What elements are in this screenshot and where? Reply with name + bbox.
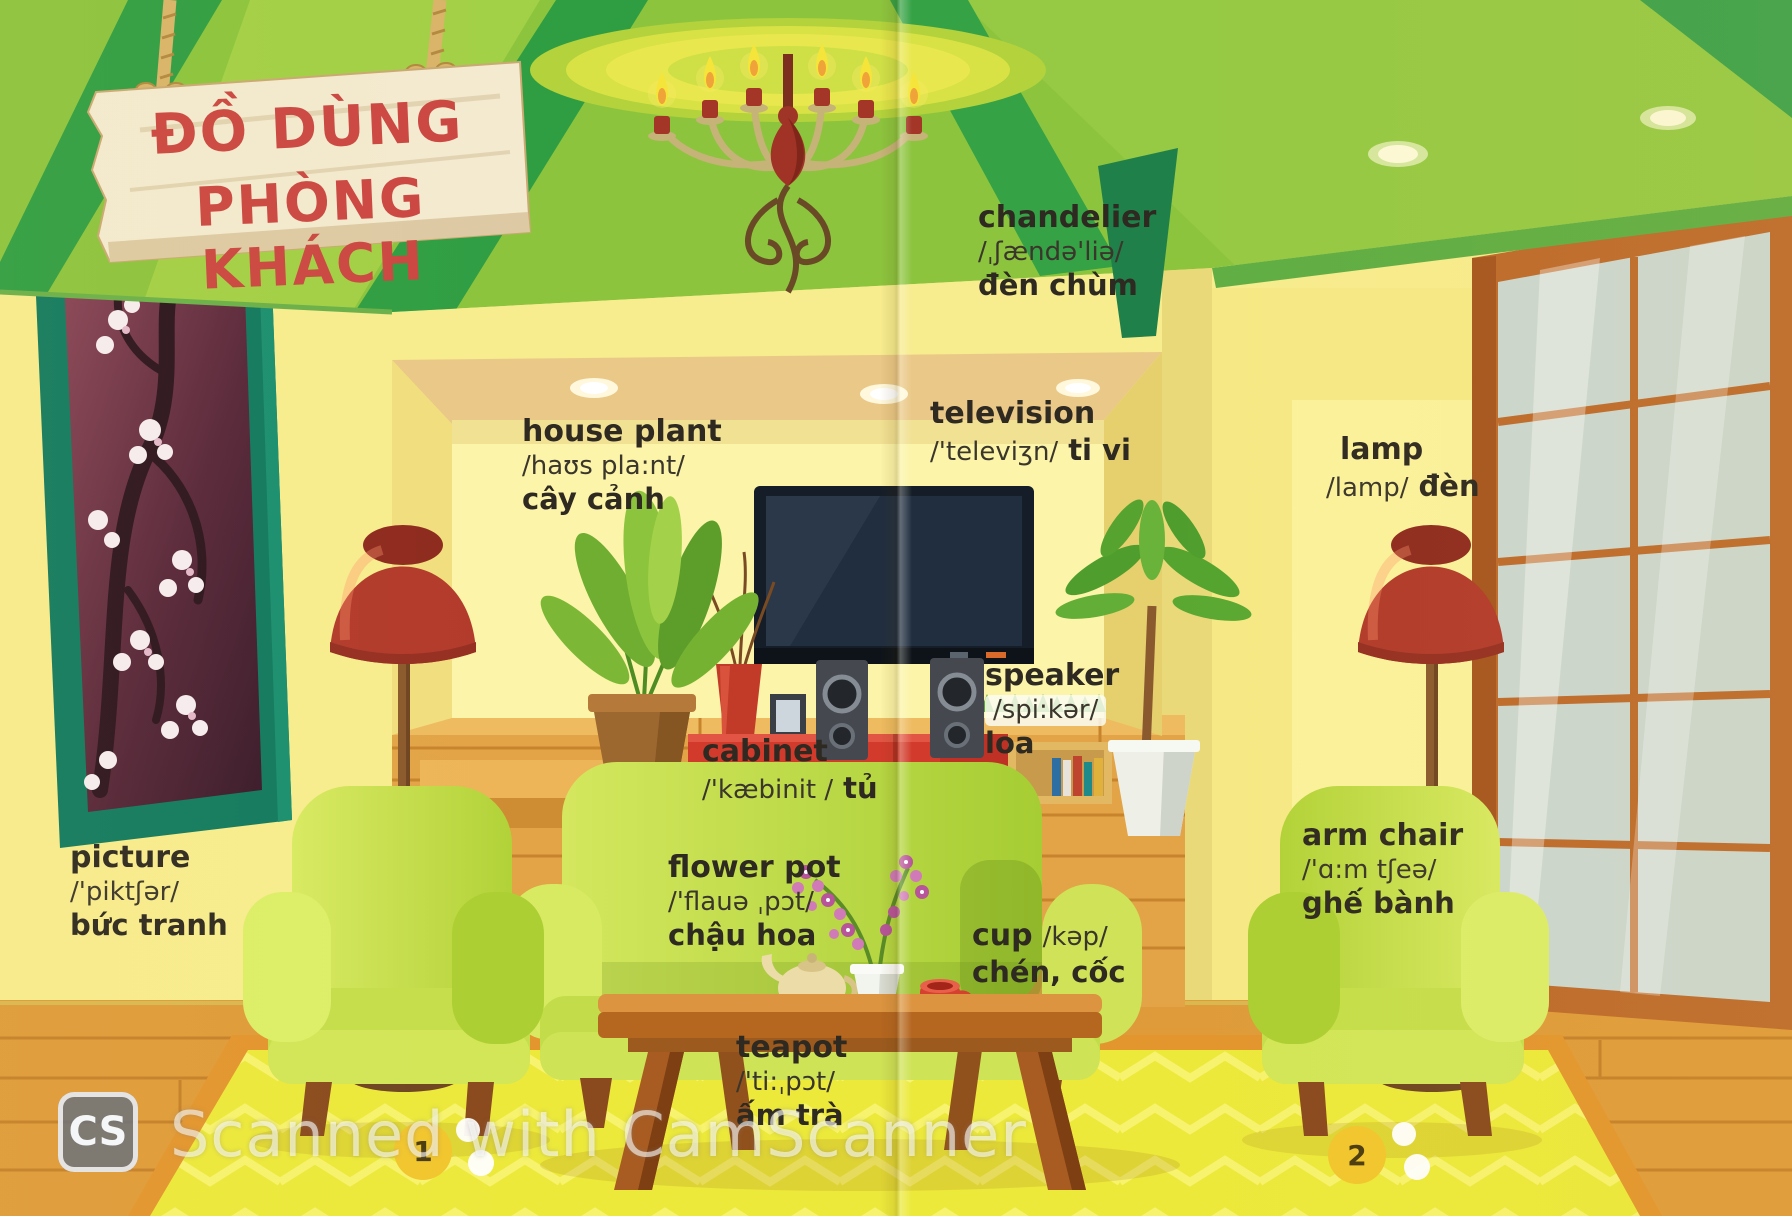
vocab-label-picture: picture /'piktʃər/ bức tranh xyxy=(70,840,228,944)
phonetic: /haʊs pla:nt/ xyxy=(522,451,722,483)
page-dot xyxy=(1404,1154,1430,1180)
vocab-label-television: television /'televiʒn/ti vi xyxy=(930,396,1131,468)
phonetic: /kəp/ xyxy=(1043,922,1108,952)
page-title-sign: ĐỒ DÙNG PHÒNG KHÁCH xyxy=(88,87,532,307)
viet: bức tranh xyxy=(70,908,228,943)
picture-frame-art xyxy=(34,230,292,848)
viet: cây cảnh xyxy=(522,482,722,517)
phonetic: /'flauə ˌpɔt/ xyxy=(668,887,841,919)
word: flower pot xyxy=(668,850,841,887)
word: cup xyxy=(972,918,1033,953)
vocab-label-arm-chair: arm chair /'ɑ:m tʃeə/ ghế bành xyxy=(1302,818,1463,922)
camscanner-watermark: Scanned with CamScanner xyxy=(170,1098,1027,1171)
page-dot xyxy=(1392,1122,1416,1146)
word: cabinet xyxy=(702,734,878,771)
speaker-right-illustration xyxy=(930,658,984,758)
viet: đèn xyxy=(1419,469,1480,503)
phonetic: /'kæbinit / xyxy=(702,775,833,805)
viet: chén, cốc xyxy=(972,955,1126,990)
vocab-label-house-plant: house plant /haʊs pla:nt/ cây cảnh xyxy=(522,414,722,518)
page-number-right: 2 xyxy=(1347,1139,1366,1172)
page-title-line2: PHÒNG KHÁCH xyxy=(91,162,532,307)
word: teapot xyxy=(736,1030,847,1067)
word: chandelier xyxy=(978,200,1156,237)
page-number-badge-right: 2 xyxy=(1328,1126,1386,1184)
vocab-label-flower-pot: flower pot /'flauə ˌpɔt/ chậu hoa xyxy=(668,850,841,954)
phonetic: /ˌʃændə'liə/ xyxy=(978,237,1156,269)
camscanner-logo-text: CS xyxy=(69,1109,128,1155)
phonetic: /'ti:ˌpɔt/ xyxy=(736,1067,847,1099)
word: house plant xyxy=(522,414,722,451)
vocab-label-chandelier: chandelier /ˌʃændə'liə/ đèn chùm xyxy=(978,200,1156,304)
television-illustration xyxy=(754,486,1034,664)
viet: tủ xyxy=(843,771,878,805)
phonetic: /'piktʃər/ xyxy=(70,877,228,909)
vocab-label-cabinet: cabinet /'kæbinit /tủ xyxy=(702,734,878,806)
word: lamp xyxy=(1340,432,1480,469)
photo-frame xyxy=(770,694,806,738)
word: arm chair xyxy=(1302,818,1463,855)
word: picture xyxy=(70,840,228,877)
phonetic: /spi:kər/ xyxy=(985,695,1106,727)
viet: ghế bành xyxy=(1302,886,1463,921)
vocab-label-lamp: lamp /lamp/đèn xyxy=(1326,432,1480,504)
camscanner-logo: CS xyxy=(58,1092,138,1172)
viet: ti vi xyxy=(1068,433,1131,467)
vocab-label-speaker: speaker /spi:kər/ loa xyxy=(985,658,1119,762)
phonetic: /'televiʒn/ xyxy=(930,437,1058,467)
phonetic: /'ɑ:m tʃeə/ xyxy=(1302,855,1463,887)
word: television xyxy=(930,396,1131,433)
viet: loa xyxy=(985,726,1119,761)
viet: chậu hoa xyxy=(668,918,841,953)
viet: đèn chùm xyxy=(978,268,1156,303)
vocab-label-cup: cup/kəp/ chén, cốc xyxy=(972,918,1126,990)
word: speaker xyxy=(985,658,1119,695)
phonetic: /lamp/ xyxy=(1326,473,1409,503)
